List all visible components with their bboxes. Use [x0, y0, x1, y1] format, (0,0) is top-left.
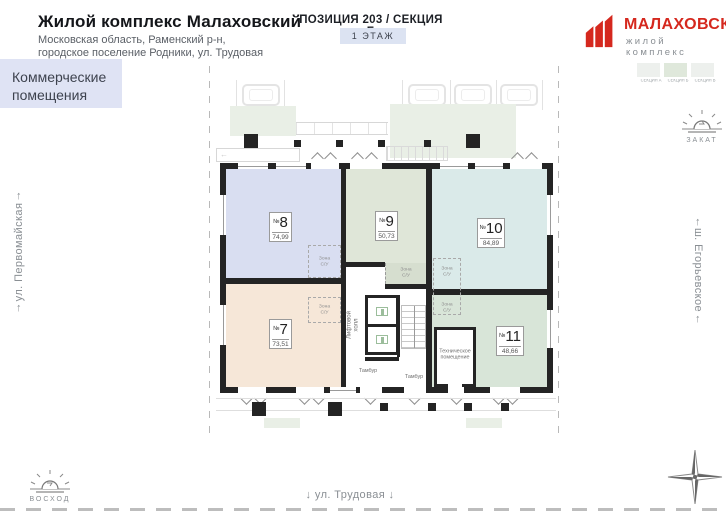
sunset-label: ЗАКАТ [678, 137, 726, 144]
car-icon [242, 84, 280, 106]
up-arrow-icon: ↑ [695, 312, 701, 324]
down-arrow-icon: ↓ [306, 489, 312, 501]
door-gap [490, 387, 520, 393]
tab-section-b-label: СЕКЦИЯ Б [668, 79, 684, 83]
column [466, 134, 480, 148]
up-arrow-icon: ↑ [695, 216, 701, 228]
door-gap [296, 387, 324, 393]
column [501, 403, 509, 411]
tab-section-b[interactable] [664, 63, 687, 77]
lawn [230, 106, 296, 136]
floor-plan: ← [208, 60, 562, 452]
elevator-icon [376, 335, 388, 344]
door-gap [510, 163, 542, 169]
category-line-2: помещения [12, 86, 122, 104]
door-gap [350, 163, 382, 169]
down-arrow-icon: ↓ [389, 489, 395, 501]
elevator-1 [368, 298, 396, 324]
window [220, 305, 226, 345]
ramp: ← [216, 148, 300, 162]
tab-section-a[interactable] [637, 63, 660, 77]
su-zone-label: ЗонаС/У [436, 266, 459, 277]
elevator-icon [376, 307, 388, 316]
logo-icon [582, 11, 620, 49]
window [440, 163, 468, 169]
column [428, 403, 436, 411]
railing [296, 122, 388, 135]
tab-section-c[interactable] [691, 63, 714, 77]
up-arrow-icon: ↑ [16, 190, 22, 202]
lift-hall-label: Лифтовойхолл [347, 298, 361, 353]
room-11-tag[interactable]: №11 48,66 [496, 326, 524, 356]
page-title: Жилой комплекс Малаховский [38, 12, 301, 32]
car-icon [500, 84, 538, 106]
car-icon [454, 84, 492, 106]
tech-room-label: Техническоепомещение [437, 349, 473, 362]
lawn [264, 418, 300, 428]
su-zone-label: ЗонаС/У [311, 304, 338, 315]
column [380, 403, 388, 411]
staircase [401, 305, 426, 349]
address-line-2: городское поселение Родники, ул. Трудова… [38, 47, 263, 59]
column [378, 140, 385, 147]
parking-divider [542, 80, 543, 110]
room-9-tag[interactable]: №9 50,73 [375, 211, 398, 241]
tambour-label: Тамбур [350, 368, 386, 374]
elevator-2 [368, 327, 396, 352]
window [547, 195, 553, 235]
street-left: ↑ ул. Первомайская ↑ [13, 177, 27, 327]
window [220, 195, 226, 235]
room-7-tag[interactable]: №7 73,51 [269, 319, 292, 349]
floor-badge: 1 ЭТАЖ [340, 28, 406, 44]
wall-9-10 [426, 163, 432, 393]
window [330, 387, 356, 393]
street-bottom: ↓ ул. Трудовая ↓ [250, 489, 450, 501]
wall-lobby-top [341, 262, 385, 267]
wall-lobby-bottom [365, 357, 399, 361]
su-zone-label: ЗонаС/У [311, 256, 338, 267]
category-badge: Коммерческие помещения [0, 59, 122, 108]
column [424, 140, 431, 147]
wall-7-8 [220, 278, 341, 284]
window [475, 163, 503, 169]
window [276, 163, 306, 169]
entrance-steps [386, 146, 448, 161]
category-line-1: Коммерческие [12, 68, 122, 86]
su-zone-label: ЗонаС/У [391, 267, 421, 278]
column [328, 402, 342, 416]
room-8-tag[interactable]: №8 74,99 [269, 212, 292, 242]
window [547, 310, 553, 348]
tech-door-gap [448, 384, 462, 388]
door-gap [311, 163, 339, 169]
tab-section-c-label: СЕКЦИЯ В [695, 79, 711, 83]
column [252, 402, 266, 416]
door-gap [238, 387, 266, 393]
compass-icon [666, 448, 724, 511]
tambour-label: Тамбур [396, 374, 432, 380]
room-10-tag[interactable]: №10 84,89 [477, 218, 505, 248]
street-right: ↑ ш. Егорьевское ↑ [690, 195, 704, 345]
tab-section-a-label: СЕКЦИЯ А [641, 79, 657, 83]
page: Жилой комплекс Малаховский Московская об… [0, 0, 726, 514]
wall-top [220, 163, 553, 169]
su-zone-label: ЗонаС/У [436, 302, 459, 313]
logo-tagline: жилой комплекс [626, 36, 726, 58]
site-boundary-bottom [0, 508, 726, 511]
wall-8-9 [341, 163, 346, 393]
column [336, 140, 343, 147]
up-arrow-icon: ↑ [16, 302, 22, 314]
site-boundary-left [209, 66, 210, 440]
column [244, 134, 258, 148]
site-boundary-right [558, 66, 559, 440]
column [294, 140, 301, 147]
window [238, 163, 268, 169]
lawn [466, 418, 502, 428]
address-line-1: Московская область, Раменский р-н, [38, 34, 226, 46]
car-icon [408, 84, 446, 106]
logo-name: МАЛАХОВСКИЙ [624, 16, 726, 34]
sidewalk-line [216, 398, 556, 399]
wall-su-bottom [385, 284, 432, 289]
column [464, 403, 472, 411]
sunrise-label: ВОСХОД [24, 496, 76, 503]
